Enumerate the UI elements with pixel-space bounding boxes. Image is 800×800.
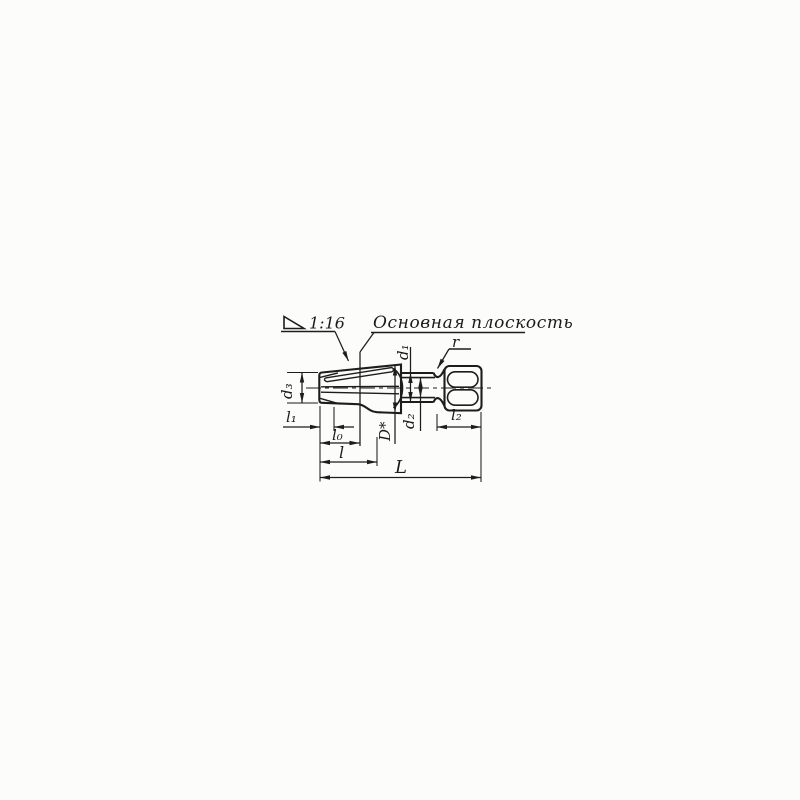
d2-label: d₂ bbox=[400, 413, 418, 429]
d3-label: d₃ bbox=[278, 383, 296, 399]
groove-bottom-curve bbox=[434, 398, 445, 406]
L-arrowhead-right bbox=[471, 475, 481, 479]
l2-arrowhead-left bbox=[437, 425, 447, 429]
l-arrowhead-left bbox=[320, 460, 330, 464]
taper-callout: 1:16 bbox=[281, 314, 349, 362]
drawing-sheet: Основная плоскость 1:16 r d₃ l₁ bbox=[0, 0, 800, 800]
dimension-l1: l₁ bbox=[283, 407, 354, 431]
L-label: L bbox=[394, 457, 407, 478]
dimension-D-star: D* bbox=[376, 366, 397, 445]
l0-label: l₀ bbox=[332, 426, 343, 444]
radius-callout: r bbox=[438, 333, 472, 369]
d1-label: d₁ bbox=[394, 344, 412, 360]
d2-arrowhead-up bbox=[418, 378, 422, 388]
l-label: l bbox=[339, 443, 344, 462]
l1-label: l₁ bbox=[286, 408, 297, 426]
l1-arrowhead-right bbox=[310, 425, 320, 429]
d3-arrowhead-up bbox=[300, 373, 304, 383]
d2-arrowhead-down bbox=[418, 388, 422, 398]
dimension-L: L bbox=[320, 457, 481, 480]
flute-top-left-join bbox=[324, 378, 327, 382]
basic-plane-label: Основная плоскость bbox=[373, 313, 573, 333]
D-star-label: D* bbox=[376, 421, 394, 442]
square-flat-top bbox=[448, 372, 479, 387]
l0-arrowhead-right bbox=[350, 441, 360, 445]
flute-top-right-join bbox=[392, 368, 394, 372]
L-arrowhead-left bbox=[320, 475, 330, 479]
taper-symbol-icon bbox=[284, 317, 304, 329]
l2-label: l₂ bbox=[451, 406, 462, 424]
d3-arrowhead-down bbox=[300, 393, 304, 403]
l-arrowhead-right bbox=[367, 460, 377, 464]
dimension-d2: d₂ bbox=[400, 378, 423, 432]
l2-arrowhead-right bbox=[471, 425, 481, 429]
taper-tap-technical-drawing: Основная плоскость 1:16 r d₃ l₁ bbox=[0, 0, 800, 800]
l0-arrowhead-left bbox=[320, 441, 330, 445]
groove-top-curve bbox=[434, 369, 445, 377]
radius-leader-arrowhead bbox=[438, 359, 445, 369]
tap-threaded-body bbox=[319, 365, 402, 414]
taper-leader-arrowhead bbox=[342, 351, 348, 361]
basic-plane-leader bbox=[360, 333, 374, 353]
square-flat-bottom bbox=[448, 390, 479, 405]
taper-value-label: 1:16 bbox=[309, 314, 345, 333]
